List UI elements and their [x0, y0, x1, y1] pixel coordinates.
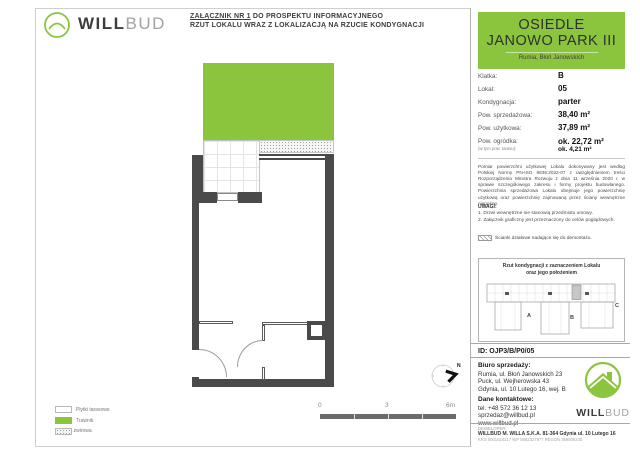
wall-segment	[192, 379, 334, 387]
title-divider	[506, 52, 598, 53]
scale-tick-3: 3	[385, 402, 389, 409]
gravel-swatch	[55, 428, 72, 435]
developer-registration: KRS 0001024217 NIP 5862327977 REGON 3695…	[478, 437, 624, 442]
hatch-label: Ścianki działowe nadające się do demonta…	[495, 236, 592, 241]
note-item-1: 1. Drzwi wewnętrzne nie stanowią przedmi…	[478, 211, 625, 218]
contact-phone: tel. +48 572 36 12 13	[478, 405, 578, 413]
tiles-swatch	[55, 406, 72, 413]
hatch-legend: Ścianki działowe nadające się do demonta…	[478, 235, 592, 241]
brand-bud: BUD	[126, 14, 166, 33]
willbud-house-icon	[577, 360, 629, 402]
notes-title: UWAGI:	[478, 204, 625, 210]
gravel-strip	[259, 140, 334, 153]
detail-row-lokal: Lokal: 05	[478, 84, 625, 97]
estate-title-line2: JANOWO PARK III	[478, 33, 625, 49]
terrace-door-sill	[217, 193, 238, 201]
detail-row-klatka: Klatka: B	[478, 71, 625, 84]
detail-row-sprzedazowa: Pow. sprzedażowa: 38,40 m²	[478, 110, 625, 123]
wall-segment	[238, 192, 262, 203]
legend-item-gravel: Opaska żwirowa	[55, 428, 92, 434]
attachment-line1: ZAŁĄCZNIK NR 1 DO PROSPEKTU INFORMACYJNE…	[190, 13, 465, 22]
estate-title-line1: OSIEDLE	[478, 17, 625, 33]
window-band	[259, 154, 325, 160]
wall-segment	[192, 202, 199, 350]
detail-row-kondygnacja: Kondygnacja: parter	[478, 97, 625, 110]
unit-id: ID: OJP3/B/P0/05	[470, 343, 630, 358]
willbud-logo-icon	[40, 8, 74, 42]
scale-tick-0: 0	[318, 402, 322, 409]
hatch-swatch	[478, 235, 492, 241]
attachment-number: ZAŁĄCZNIK NR 1	[190, 13, 251, 20]
scale-bar	[320, 414, 456, 419]
sales-address: Gdynia, ul. 10 Lutego 16, wej. B	[478, 386, 578, 394]
terrace-tiles-area	[203, 140, 260, 193]
brand-wordmark: WILLBUD	[78, 14, 166, 34]
stair-label-a: A	[527, 313, 531, 319]
partition-wall	[262, 367, 265, 380]
stair-label-b: B	[570, 315, 574, 321]
partition-wall	[262, 322, 308, 325]
attachment-line2: RZUT LOKALU WRAZ Z LOKALIZACJĄ NA RZUCIE…	[190, 22, 465, 31]
north-label: N	[457, 363, 461, 369]
sales-office-title: Biuro sprzedaży:	[478, 362, 578, 371]
estate-title-box: OSIEDLE JANOWO PARK III Rumia, Błoń Jano…	[478, 12, 625, 69]
brand-will: WILL	[78, 14, 126, 33]
note-item-2: 2. Załącznik graficzny jest przeznaczony…	[478, 218, 625, 225]
garden-area	[203, 63, 334, 140]
partition-wall	[199, 321, 233, 324]
sales-address: Rumia, ul. Błoń Janowskich 23	[478, 371, 578, 379]
developer-block: DEWELOPER: WILLBUD M. WILLA S.K.A. 81-36…	[470, 423, 630, 442]
unit-details-table: Klatka: B Lokal: 05 Kondygnacja: parter …	[478, 71, 625, 159]
legend-item-tiles: Płytki tarasowe	[55, 406, 110, 413]
contact-email: sprzedaz@willbud.pl	[478, 412, 578, 420]
scale-tick-6m: 6m	[446, 402, 455, 409]
sales-address: Puck, ul. Wejherowska 43	[478, 378, 578, 386]
partition-wall	[262, 325, 265, 341]
footer-logo: WILLBUD	[576, 360, 630, 419]
detail-row-uzytkowa: Pow. użytkowa: 37,89 m²	[478, 123, 625, 136]
measurement-disclaimer: Pomiar powierzchni użytkowej Lokalu doko…	[478, 164, 625, 207]
highlighted-unit	[572, 285, 581, 300]
wall-segment	[325, 154, 334, 387]
sales-office-block: Biuro sprzedaży: Rumia, ul. Błoń Janowsk…	[478, 362, 578, 428]
estate-subtitle: Rumia, Błoń Janowskich	[478, 55, 625, 61]
attachment-title: ZAŁĄCZNIK NR 1 DO PROSPEKTU INFORMACYJNE…	[190, 13, 465, 30]
contact-title: Dane kontaktowe:	[478, 396, 578, 405]
legend-item-grass: Trawnik	[55, 417, 93, 424]
floor-location-section: Rzut kondygnacji z zaznaczeniem Lokalu o…	[478, 258, 625, 342]
detail-row-ogrodka: Pow. ogródka: (w tym pow. tarasu): ok. 2…	[478, 137, 625, 153]
building-mini-plan: A B C	[481, 276, 622, 338]
document-page: WILLBUD ZAŁĄCZNIK NR 1 DO PROSPEKTU INFO…	[0, 0, 640, 452]
footer-brand-wordmark: WILLBUD	[576, 407, 630, 419]
notes-section: UWAGI: 1. Drzwi wewnętrzne nie stanowią …	[478, 204, 625, 224]
wall-segment	[192, 192, 217, 203]
duct-shaft	[307, 321, 326, 340]
grass-swatch	[55, 417, 72, 424]
stair-label-c: C	[615, 303, 619, 309]
